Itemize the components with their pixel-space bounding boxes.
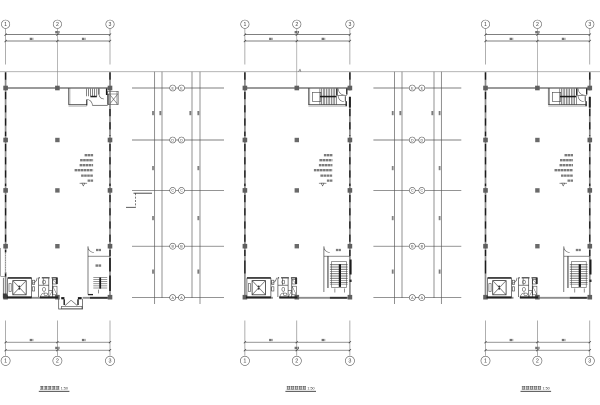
svg-text:C: C — [180, 189, 183, 193]
svg-text:C: C — [411, 189, 414, 193]
svg-text:D: D — [171, 138, 174, 142]
svg-text:3: 3 — [588, 359, 591, 365]
svg-text:1: 1 — [243, 22, 246, 28]
svg-text:2: 2 — [56, 359, 59, 365]
svg-text:D: D — [180, 138, 183, 142]
svg-text:1:50: 1:50 — [543, 387, 550, 391]
svg-text:D: D — [411, 138, 414, 142]
svg-text:3: 3 — [348, 22, 351, 28]
svg-text:3: 3 — [588, 22, 591, 28]
svg-text:1: 1 — [484, 359, 487, 365]
svg-text:2: 2 — [536, 22, 539, 28]
svg-text:2: 2 — [295, 22, 298, 28]
svg-text:1: 1 — [243, 359, 246, 365]
svg-text:1: 1 — [4, 22, 7, 28]
svg-text:2: 2 — [536, 359, 539, 365]
svg-text:1:50: 1:50 — [61, 387, 68, 391]
svg-text:C: C — [420, 189, 423, 193]
svg-text:1: 1 — [484, 22, 487, 28]
svg-text:2: 2 — [56, 22, 59, 28]
svg-text:1: 1 — [4, 359, 7, 365]
svg-text:2: 2 — [295, 359, 298, 365]
svg-text:3: 3 — [109, 22, 112, 28]
svg-text:C: C — [171, 189, 174, 193]
svg-text:D: D — [420, 138, 423, 142]
svg-text:3: 3 — [109, 359, 112, 365]
svg-text:3: 3 — [348, 359, 351, 365]
svg-text:1:50: 1:50 — [307, 387, 314, 391]
